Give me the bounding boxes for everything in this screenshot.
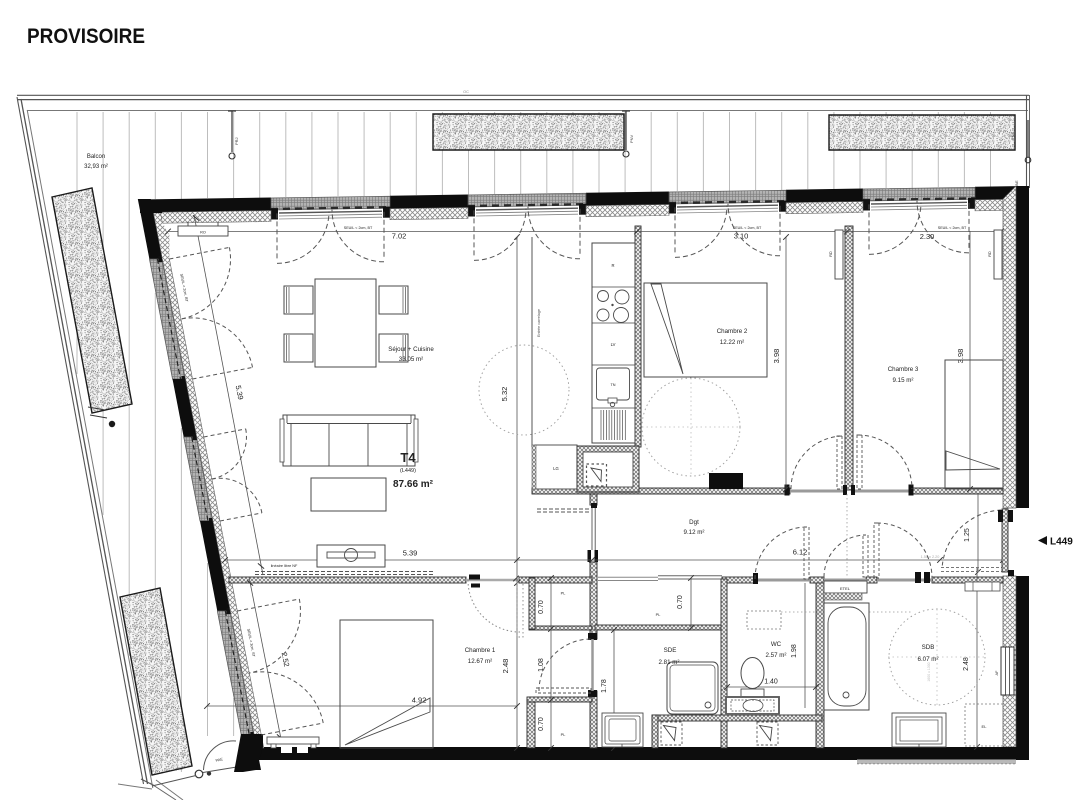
- svg-text:L449: L449: [1050, 537, 1073, 548]
- svg-text:LG: LG: [553, 466, 559, 471]
- svg-text:2.57 m²: 2.57 m²: [766, 652, 787, 659]
- svg-text:Chambre 1: Chambre 1: [465, 647, 496, 654]
- svg-text:87.66 m²: 87.66 m²: [393, 479, 434, 490]
- svg-text:PL: PL: [656, 613, 661, 617]
- svg-text:4.92: 4.92: [412, 696, 427, 705]
- svg-text:2.81 m²: 2.81 m²: [659, 659, 680, 666]
- svg-text:SEUIL < 2cm, BT: SEUIL < 2cm, BT: [938, 226, 967, 230]
- svg-text:1600 x 1300: 1600 x 1300: [927, 662, 931, 681]
- svg-text:2.48: 2.48: [963, 657, 970, 671]
- svg-text:T4: T4: [400, 450, 416, 465]
- svg-text:3.98: 3.98: [956, 349, 965, 364]
- svg-text:AF: AF: [995, 670, 999, 676]
- svg-text:3.10: 3.10: [734, 232, 749, 241]
- svg-text:RO: RO: [200, 231, 206, 235]
- svg-text:7.02: 7.02: [392, 232, 407, 241]
- svg-text:Chambre 2: Chambre 2: [717, 328, 748, 335]
- svg-text:SEUIL < 2cm, BT: SEUIL < 2cm, BT: [733, 226, 762, 230]
- svg-text:1.98: 1.98: [791, 644, 798, 658]
- svg-text:12.67 m²: 12.67 m²: [468, 658, 492, 665]
- svg-text:PL: PL: [561, 592, 566, 596]
- svg-text:R: R: [611, 263, 614, 268]
- svg-text:PRJ: PRJ: [234, 137, 239, 145]
- svg-text:6.07 m²: 6.07 m²: [918, 656, 939, 663]
- svg-text:linéaire libre NF: linéaire libre NF: [271, 564, 298, 568]
- svg-text:PNE: PNE: [1010, 131, 1015, 140]
- svg-text:PL: PL: [561, 733, 566, 737]
- svg-text:SDB: SDB: [922, 644, 935, 651]
- svg-text:5.39: 5.39: [403, 549, 418, 558]
- svg-text:WC: WC: [771, 641, 782, 648]
- svg-text:EL: EL: [982, 724, 988, 729]
- svg-text:OC: OC: [463, 90, 469, 94]
- svg-text:0.70: 0.70: [677, 595, 684, 609]
- svg-text:1.40: 1.40: [764, 679, 778, 686]
- svg-text:Dgt: Dgt: [689, 519, 699, 526]
- svg-text:LV: LV: [611, 342, 616, 347]
- svg-text:2.48: 2.48: [501, 659, 510, 674]
- svg-text:SEUIL < 2cm, BT: SEUIL < 2cm, BT: [344, 226, 373, 230]
- svg-text:12.22 m²: 12.22 m²: [720, 339, 744, 346]
- svg-text:9.15 m²: 9.15 m²: [893, 377, 914, 384]
- svg-text:6.12: 6.12: [793, 548, 808, 557]
- svg-text:1.78: 1.78: [601, 679, 608, 693]
- svg-text:Balcon: Balcon: [87, 154, 105, 160]
- svg-text:5.32: 5.32: [500, 387, 509, 402]
- svg-text:Séjour + Cuisine: Séjour + Cuisine: [388, 346, 434, 353]
- svg-text:32,93 m²: 32,93 m²: [84, 164, 108, 170]
- svg-text:0.70: 0.70: [538, 600, 545, 614]
- svg-text:1.50 x 2.20: 1.50 x 2.20: [921, 555, 940, 559]
- svg-text:Chambre 3: Chambre 3: [888, 366, 919, 373]
- svg-text:RD: RD: [988, 251, 992, 257]
- svg-text:0.70: 0.70: [538, 717, 545, 731]
- svg-text:1.25: 1.25: [964, 528, 971, 542]
- svg-text:ETEL: ETEL: [840, 586, 851, 591]
- svg-text:3.98: 3.98: [772, 349, 781, 364]
- svg-text:RD: RD: [829, 251, 833, 257]
- svg-text:PROVISOIRE: PROVISOIRE: [27, 25, 145, 48]
- svg-text:SDE: SDE: [664, 647, 677, 654]
- svg-text:PNV: PNV: [629, 134, 634, 143]
- svg-text:33.05 m²: 33.05 m²: [399, 356, 423, 363]
- svg-text:TN: TN: [610, 383, 615, 387]
- svg-text:(L449): (L449): [400, 468, 416, 474]
- svg-text:9.12 m²: 9.12 m²: [684, 529, 705, 536]
- svg-text:Entrée carrelage: Entrée carrelage: [537, 309, 541, 337]
- svg-text:2.30: 2.30: [920, 232, 935, 241]
